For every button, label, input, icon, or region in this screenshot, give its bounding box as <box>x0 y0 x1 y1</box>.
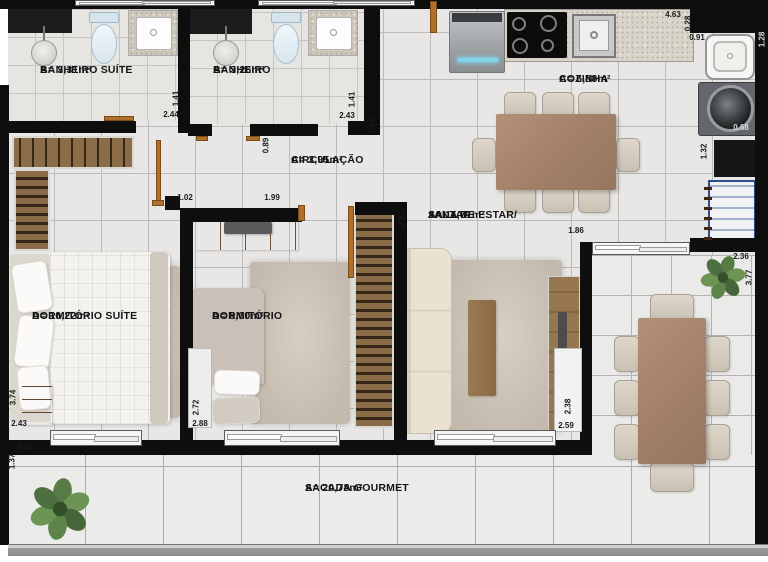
dining-chair <box>542 186 574 213</box>
coffee-table-icon <box>468 300 496 396</box>
wall-banheiro-right <box>364 0 380 121</box>
dimension-label: 1.41 <box>348 89 357 111</box>
terrace-chair <box>650 462 694 492</box>
dimension-label: 3.74 <box>9 387 18 409</box>
shaft-banheiro-suite <box>8 8 72 33</box>
door-banheiro-jamb-right <box>246 136 260 141</box>
dimension-label: 2.38 <box>564 396 573 418</box>
wall-banheiro-suite-south <box>8 121 136 133</box>
wall-banheiro-south-b <box>250 124 318 136</box>
bed-throw <box>150 252 168 424</box>
terrace-chair <box>704 336 730 372</box>
dimension-label: 1.86 <box>565 226 587 235</box>
dimension-label: 8.30 <box>14 442 36 451</box>
tv-icon-2 <box>224 222 272 234</box>
dimension-label: 0.68 <box>730 123 752 132</box>
plant-icon-2 <box>700 255 746 300</box>
dimension-label: 1.41 <box>172 88 181 110</box>
pillow <box>211 396 260 425</box>
exterior-gap <box>0 9 8 85</box>
door-banheiro-suite <box>104 116 134 121</box>
dining-chair <box>472 138 496 172</box>
dimension-label: 2.59 <box>555 421 577 430</box>
dimension-callout-box <box>554 348 582 432</box>
wardrobe-icon-2 <box>354 212 394 428</box>
room-area: A= 11,71m² <box>428 209 485 222</box>
kitchen-sink-drain <box>590 31 598 39</box>
wall-banheiro-south-a <box>188 124 212 136</box>
dimension-label: 1.02 <box>174 193 196 202</box>
dimension-label: 1.54 <box>368 116 377 138</box>
terrace-table-icon <box>638 318 706 464</box>
dimension-label: 2.43 <box>8 419 30 428</box>
window-banheiro <box>258 0 415 6</box>
dimension-label: 2.43 <box>336 111 358 120</box>
dimension-label: 2.36 <box>730 252 752 261</box>
door-cozinha <box>430 1 437 33</box>
room-area: A= 3,31m² <box>40 64 92 77</box>
terrace-chair <box>614 336 640 372</box>
wall-left <box>0 85 9 545</box>
window-dorm-balcony <box>224 430 340 446</box>
dimension-label: 1.99 <box>261 193 283 202</box>
shower-drain-icon <box>31 40 57 66</box>
window-sala-balcony <box>434 430 556 446</box>
dimension-label: 2.88 <box>189 419 211 428</box>
dimension-label: 0.28 <box>684 13 693 35</box>
wall-right <box>755 0 768 556</box>
room-area: A= 8,00m² <box>212 310 264 323</box>
wardrobe-icon <box>12 136 134 169</box>
window-sala-terrace <box>592 242 690 255</box>
dining-chair <box>578 186 610 213</box>
terrace-chair <box>614 380 640 416</box>
service-opening <box>714 140 755 177</box>
balcony-railing <box>8 544 768 556</box>
door-dormitorio-suite-jamb <box>152 200 164 206</box>
plant-icon <box>28 478 92 540</box>
dimension-label: 1.37 <box>8 451 17 473</box>
door-dormitorio <box>348 206 354 278</box>
terrace-chair <box>704 424 730 460</box>
dimension-label: 2.44 <box>160 110 182 119</box>
door-banheiro-jamb-left <box>196 136 208 141</box>
burner <box>540 15 557 32</box>
fridge-top <box>452 13 502 22</box>
dimension-label: 2.81 <box>398 208 407 230</box>
dimension-label: 1.32 <box>700 141 709 163</box>
wall-terrace-north <box>690 238 768 252</box>
dorm-rug <box>250 262 350 424</box>
window-banheiro-suite <box>75 0 215 6</box>
dimension-label: 2.72 <box>192 397 201 419</box>
dining-table-icon <box>496 114 616 190</box>
drying-rack-rungs <box>704 182 712 240</box>
room-area: A= 20,78m² <box>305 482 363 495</box>
burner <box>541 39 554 52</box>
room-area: A= 3,95m² <box>291 154 343 167</box>
sink-drain <box>150 29 157 36</box>
terrace-chair <box>704 380 730 416</box>
door-dormitorio-jamb <box>298 205 305 221</box>
toilet-icon-2 <box>273 24 299 64</box>
toilet-tank <box>89 12 119 23</box>
window-dorm-suite-balcony <box>50 430 142 446</box>
dimension-label: 4.63 <box>662 10 684 19</box>
dimension-label: 0.91 <box>686 33 708 42</box>
wardrobe-icon <box>14 169 50 251</box>
balcony-floor <box>8 455 755 544</box>
toilet-tank-2 <box>271 12 301 23</box>
burner <box>512 17 526 31</box>
wall-service-corner <box>690 0 768 33</box>
floor-plan: BANHEIRO SUÍTE A= 3,31m² BANHEIRO A= 3,2… <box>0 0 768 562</box>
wall-circulacao-south <box>180 208 302 222</box>
laundry-sink-drain <box>727 53 733 59</box>
sala-rug <box>446 260 562 432</box>
burner <box>512 38 528 54</box>
pillow <box>10 259 53 314</box>
terrace-chair <box>614 424 640 460</box>
drying-rack-icon <box>708 180 756 242</box>
sink-drain-2 <box>330 29 337 36</box>
shaft-banheiro <box>190 8 252 34</box>
dimension-label: 0.89 <box>262 135 271 157</box>
toilet-icon <box>91 24 117 64</box>
dimension-label: 3.77 <box>745 267 754 289</box>
shower-drain-icon-2 <box>213 40 239 66</box>
wall-dorm-sala <box>394 214 407 455</box>
dining-chair <box>616 138 640 172</box>
room-area: A= 10,22m² <box>32 310 90 323</box>
dimension-label: 1.28 <box>758 29 767 51</box>
room-area: A= 3,26m² <box>213 64 265 77</box>
fridge-dispenser <box>458 58 498 62</box>
room-area: A= 6,88m² <box>559 73 611 86</box>
pillow <box>214 369 261 396</box>
door-dormitorio-suite <box>156 140 161 202</box>
